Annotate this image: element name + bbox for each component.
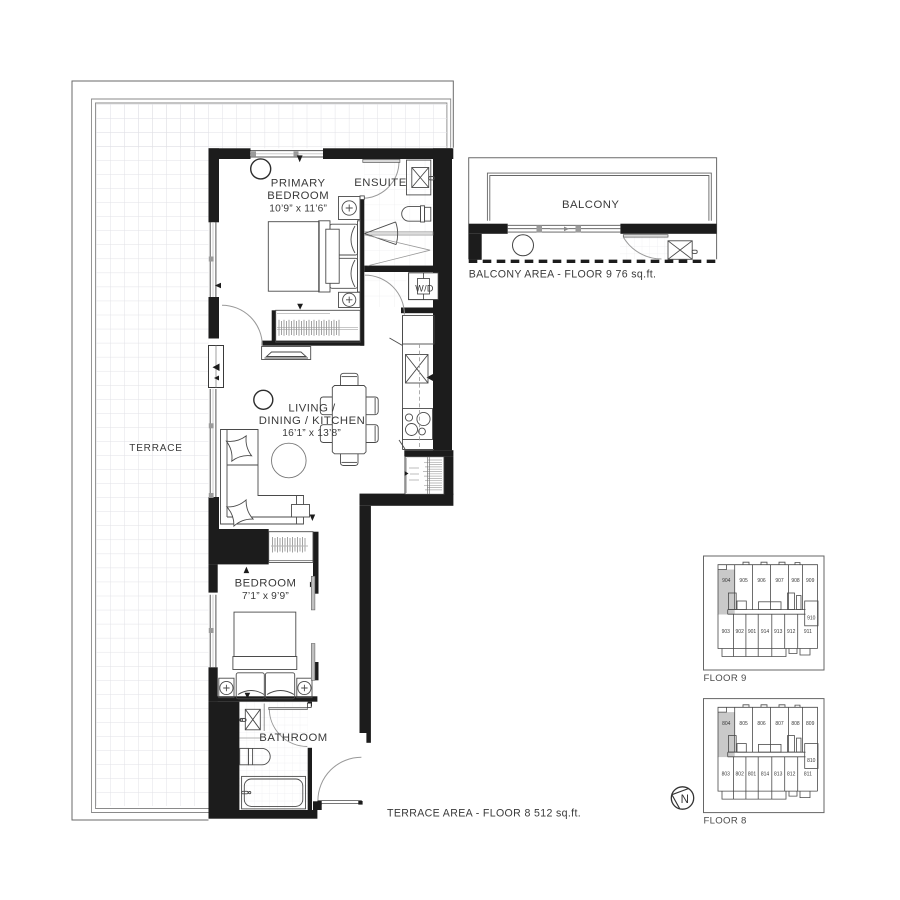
- svg-text:TERRACE AREA - FLOOR 8 512 sq.: TERRACE AREA - FLOOR 8 512 sq.ft.: [387, 808, 581, 820]
- svg-text:FLOOR 9: FLOOR 9: [704, 673, 747, 684]
- svg-text:906: 906: [757, 578, 766, 584]
- svg-text:812: 812: [787, 771, 796, 777]
- svg-text:813: 813: [774, 771, 783, 777]
- svg-text:810: 810: [807, 758, 816, 764]
- svg-text:807: 807: [775, 721, 784, 727]
- svg-text:LIVING /: LIVING /: [288, 403, 336, 415]
- svg-text:905: 905: [739, 578, 748, 584]
- svg-text:BATHROOM: BATHROOM: [259, 732, 327, 744]
- svg-text:809: 809: [806, 721, 815, 727]
- svg-text:W/D: W/D: [415, 284, 434, 294]
- svg-text:909: 909: [806, 578, 815, 584]
- svg-text:907: 907: [775, 578, 784, 584]
- svg-text:904: 904: [722, 578, 731, 584]
- svg-text:TERRACE: TERRACE: [129, 443, 182, 454]
- svg-text:805: 805: [739, 721, 748, 727]
- svg-text:808: 808: [791, 721, 800, 727]
- svg-text:910: 910: [807, 616, 816, 622]
- svg-text:16’1” x 13’8”: 16’1” x 13’8”: [282, 428, 341, 439]
- svg-text:7’1” x 9’9”: 7’1” x 9’9”: [242, 591, 289, 602]
- svg-text:FLOOR 8: FLOOR 8: [704, 816, 747, 827]
- svg-text:804: 804: [722, 721, 731, 727]
- svg-text:814: 814: [761, 771, 770, 777]
- svg-text:BEDROOM: BEDROOM: [235, 578, 297, 590]
- svg-text:903: 903: [722, 629, 731, 635]
- svg-text:902: 902: [736, 629, 745, 635]
- svg-text:908: 908: [791, 578, 800, 584]
- svg-text:PRIMARY: PRIMARY: [271, 178, 326, 190]
- svg-text:912: 912: [787, 629, 796, 635]
- svg-text:DINING / KITCHEN: DINING / KITCHEN: [259, 415, 366, 427]
- svg-text:801: 801: [748, 771, 757, 777]
- svg-text:901: 901: [748, 629, 757, 635]
- svg-text:913: 913: [774, 629, 783, 635]
- svg-text:911: 911: [804, 629, 812, 635]
- svg-text:BALCONY: BALCONY: [562, 199, 620, 211]
- svg-text:BEDROOM: BEDROOM: [267, 190, 329, 202]
- svg-text:806: 806: [757, 721, 766, 727]
- svg-text:914: 914: [761, 629, 770, 635]
- svg-text:10’9” x 11’6”: 10’9” x 11’6”: [269, 204, 327, 215]
- svg-text:ENSUITE: ENSUITE: [354, 177, 406, 189]
- svg-text:802: 802: [736, 771, 745, 777]
- svg-text:BALCONY AREA - FLOOR 9 76 sq.f: BALCONY AREA - FLOOR 9 76 sq.ft.: [469, 269, 657, 281]
- svg-text:N: N: [681, 794, 689, 806]
- svg-text:811: 811: [804, 771, 812, 777]
- svg-text:803: 803: [722, 771, 731, 777]
